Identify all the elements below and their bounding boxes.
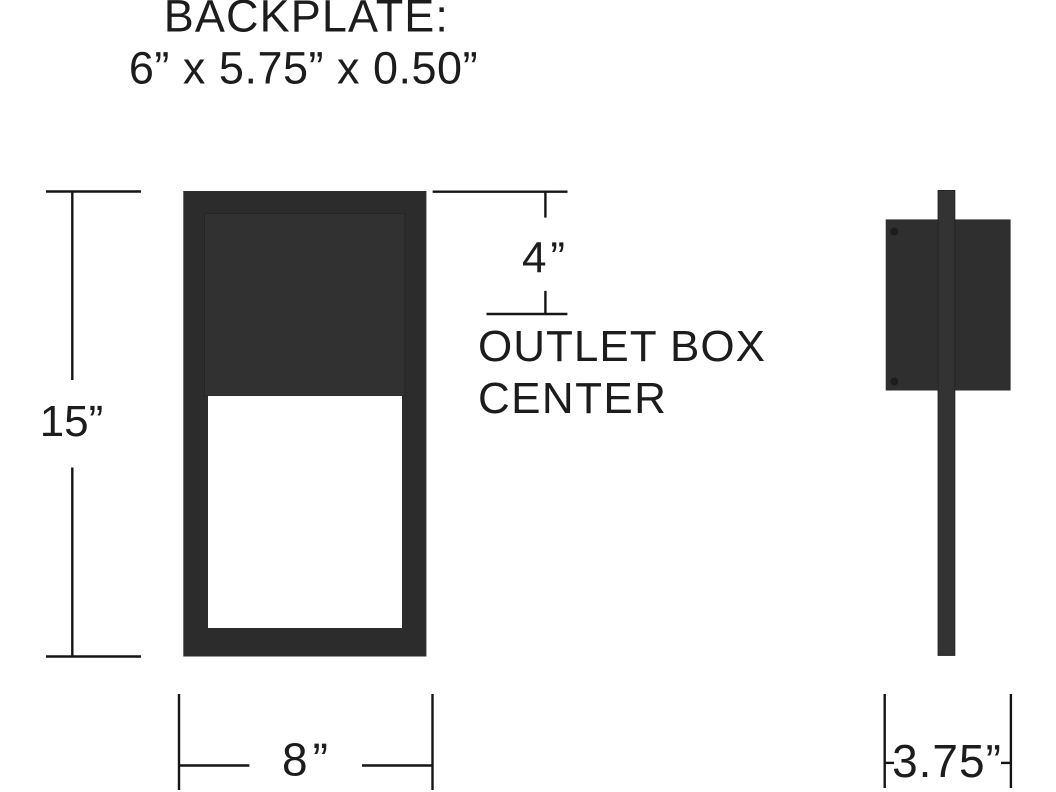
svg-text:OUTLET BOX: OUTLET BOX bbox=[478, 322, 766, 371]
svg-text:6” x 5.75” x 0.50”: 6” x 5.75” x 0.50” bbox=[129, 43, 478, 94]
svg-text:CENTER: CENTER bbox=[478, 374, 667, 423]
svg-text:15”: 15” bbox=[40, 397, 104, 446]
svg-text:BACKPLATE:: BACKPLATE: bbox=[164, 0, 449, 41]
svg-text:4”: 4” bbox=[522, 234, 569, 283]
svg-text:8”: 8” bbox=[282, 734, 333, 786]
svg-text:3.75”: 3.75” bbox=[892, 735, 1002, 787]
